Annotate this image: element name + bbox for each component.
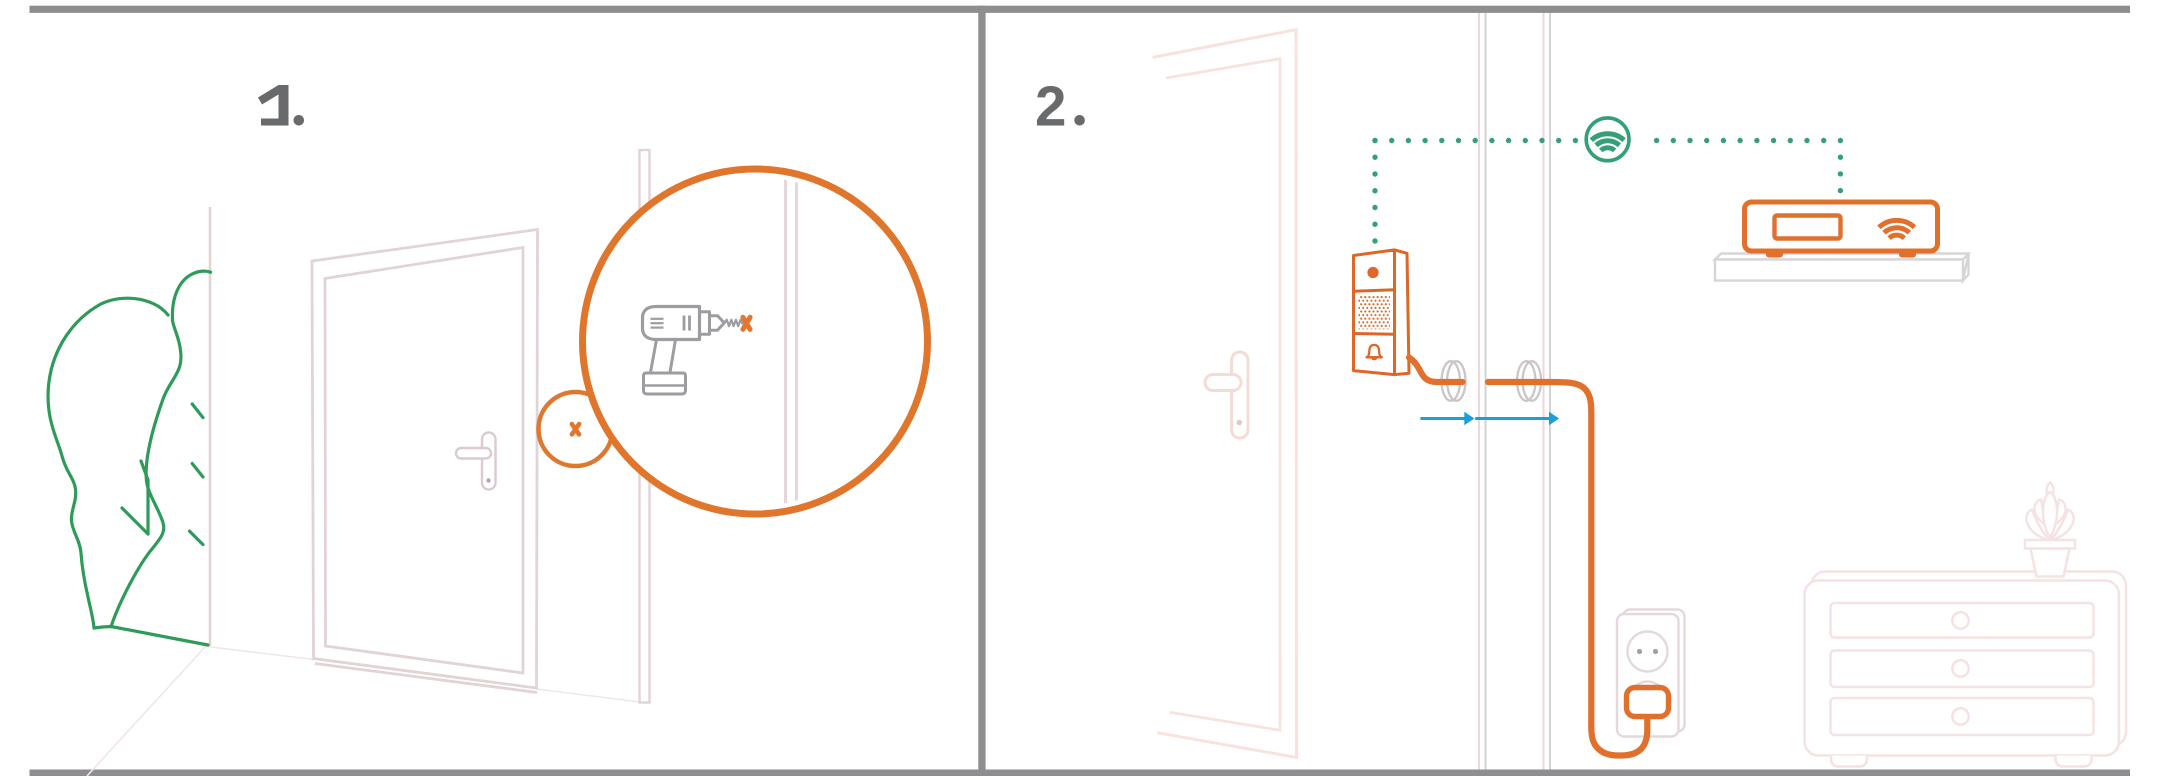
- svg-text:2: 2: [1035, 75, 1066, 138]
